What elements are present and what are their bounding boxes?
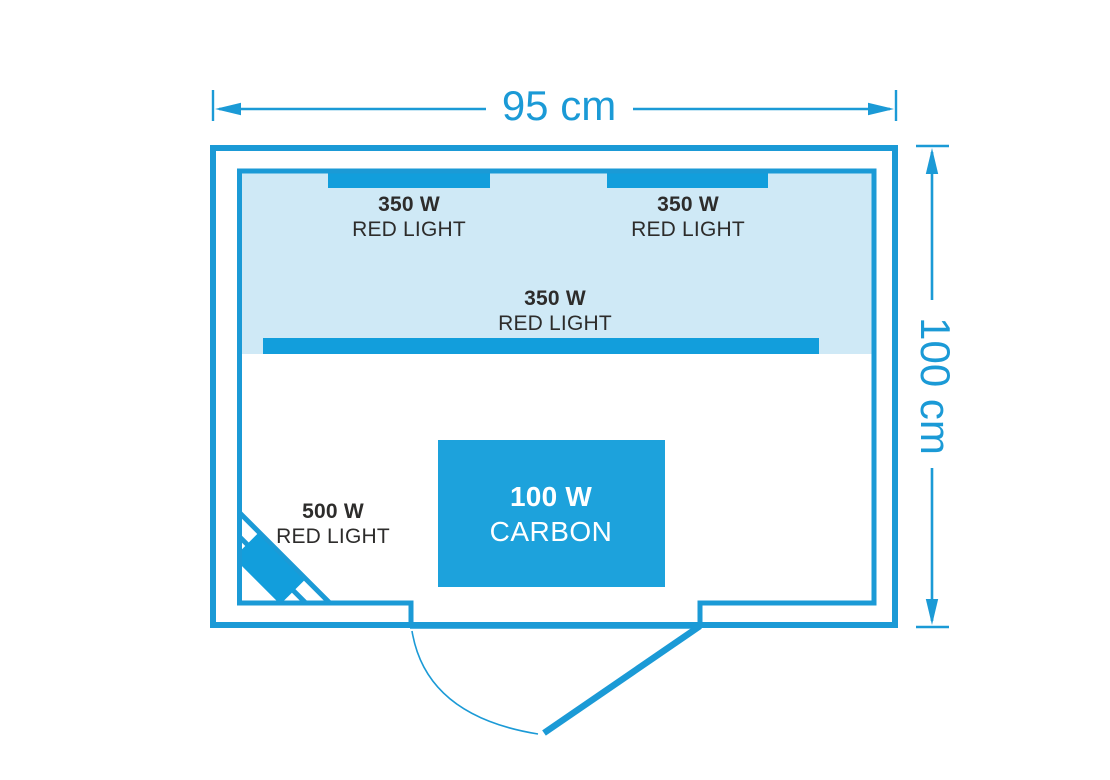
heater-label-corner: 500 W RED LIGHT	[276, 499, 390, 549]
door-swing-arc	[412, 631, 538, 734]
arrow-left-icon	[215, 103, 241, 115]
heater-type: RED LIGHT	[631, 217, 745, 242]
arrow-right-icon	[868, 103, 894, 115]
width-dimension-label: 95 cm	[502, 82, 616, 130]
door-leaf	[544, 626, 700, 733]
heater-type: RED LIGHT	[352, 217, 466, 242]
height-dimension-label: 100 cm	[911, 317, 959, 455]
heater-label-top-right: 350 W RED LIGHT	[631, 192, 745, 242]
heater-label-top-left: 350 W RED LIGHT	[352, 192, 466, 242]
heater-power: 100 W	[490, 479, 613, 514]
heater-type: RED LIGHT	[498, 311, 612, 336]
heater-type: CARBON	[490, 514, 613, 549]
heater-bar-middle	[263, 338, 819, 354]
heater-type: RED LIGHT	[276, 524, 390, 549]
arrow-down-icon	[926, 599, 938, 625]
heater-power: 350 W	[352, 192, 466, 217]
floor-plan-diagram: 95 cm 100 cm 350 W RED LIGHT 350 W RED L…	[0, 0, 1110, 780]
heater-label-middle: 350 W RED LIGHT	[498, 286, 612, 336]
heater-power: 350 W	[631, 192, 745, 217]
carbon-heater-label: 100 W CARBON	[490, 479, 613, 549]
arrow-up-icon	[926, 148, 938, 174]
heater-power: 350 W	[498, 286, 612, 311]
heater-power: 500 W	[276, 499, 390, 524]
